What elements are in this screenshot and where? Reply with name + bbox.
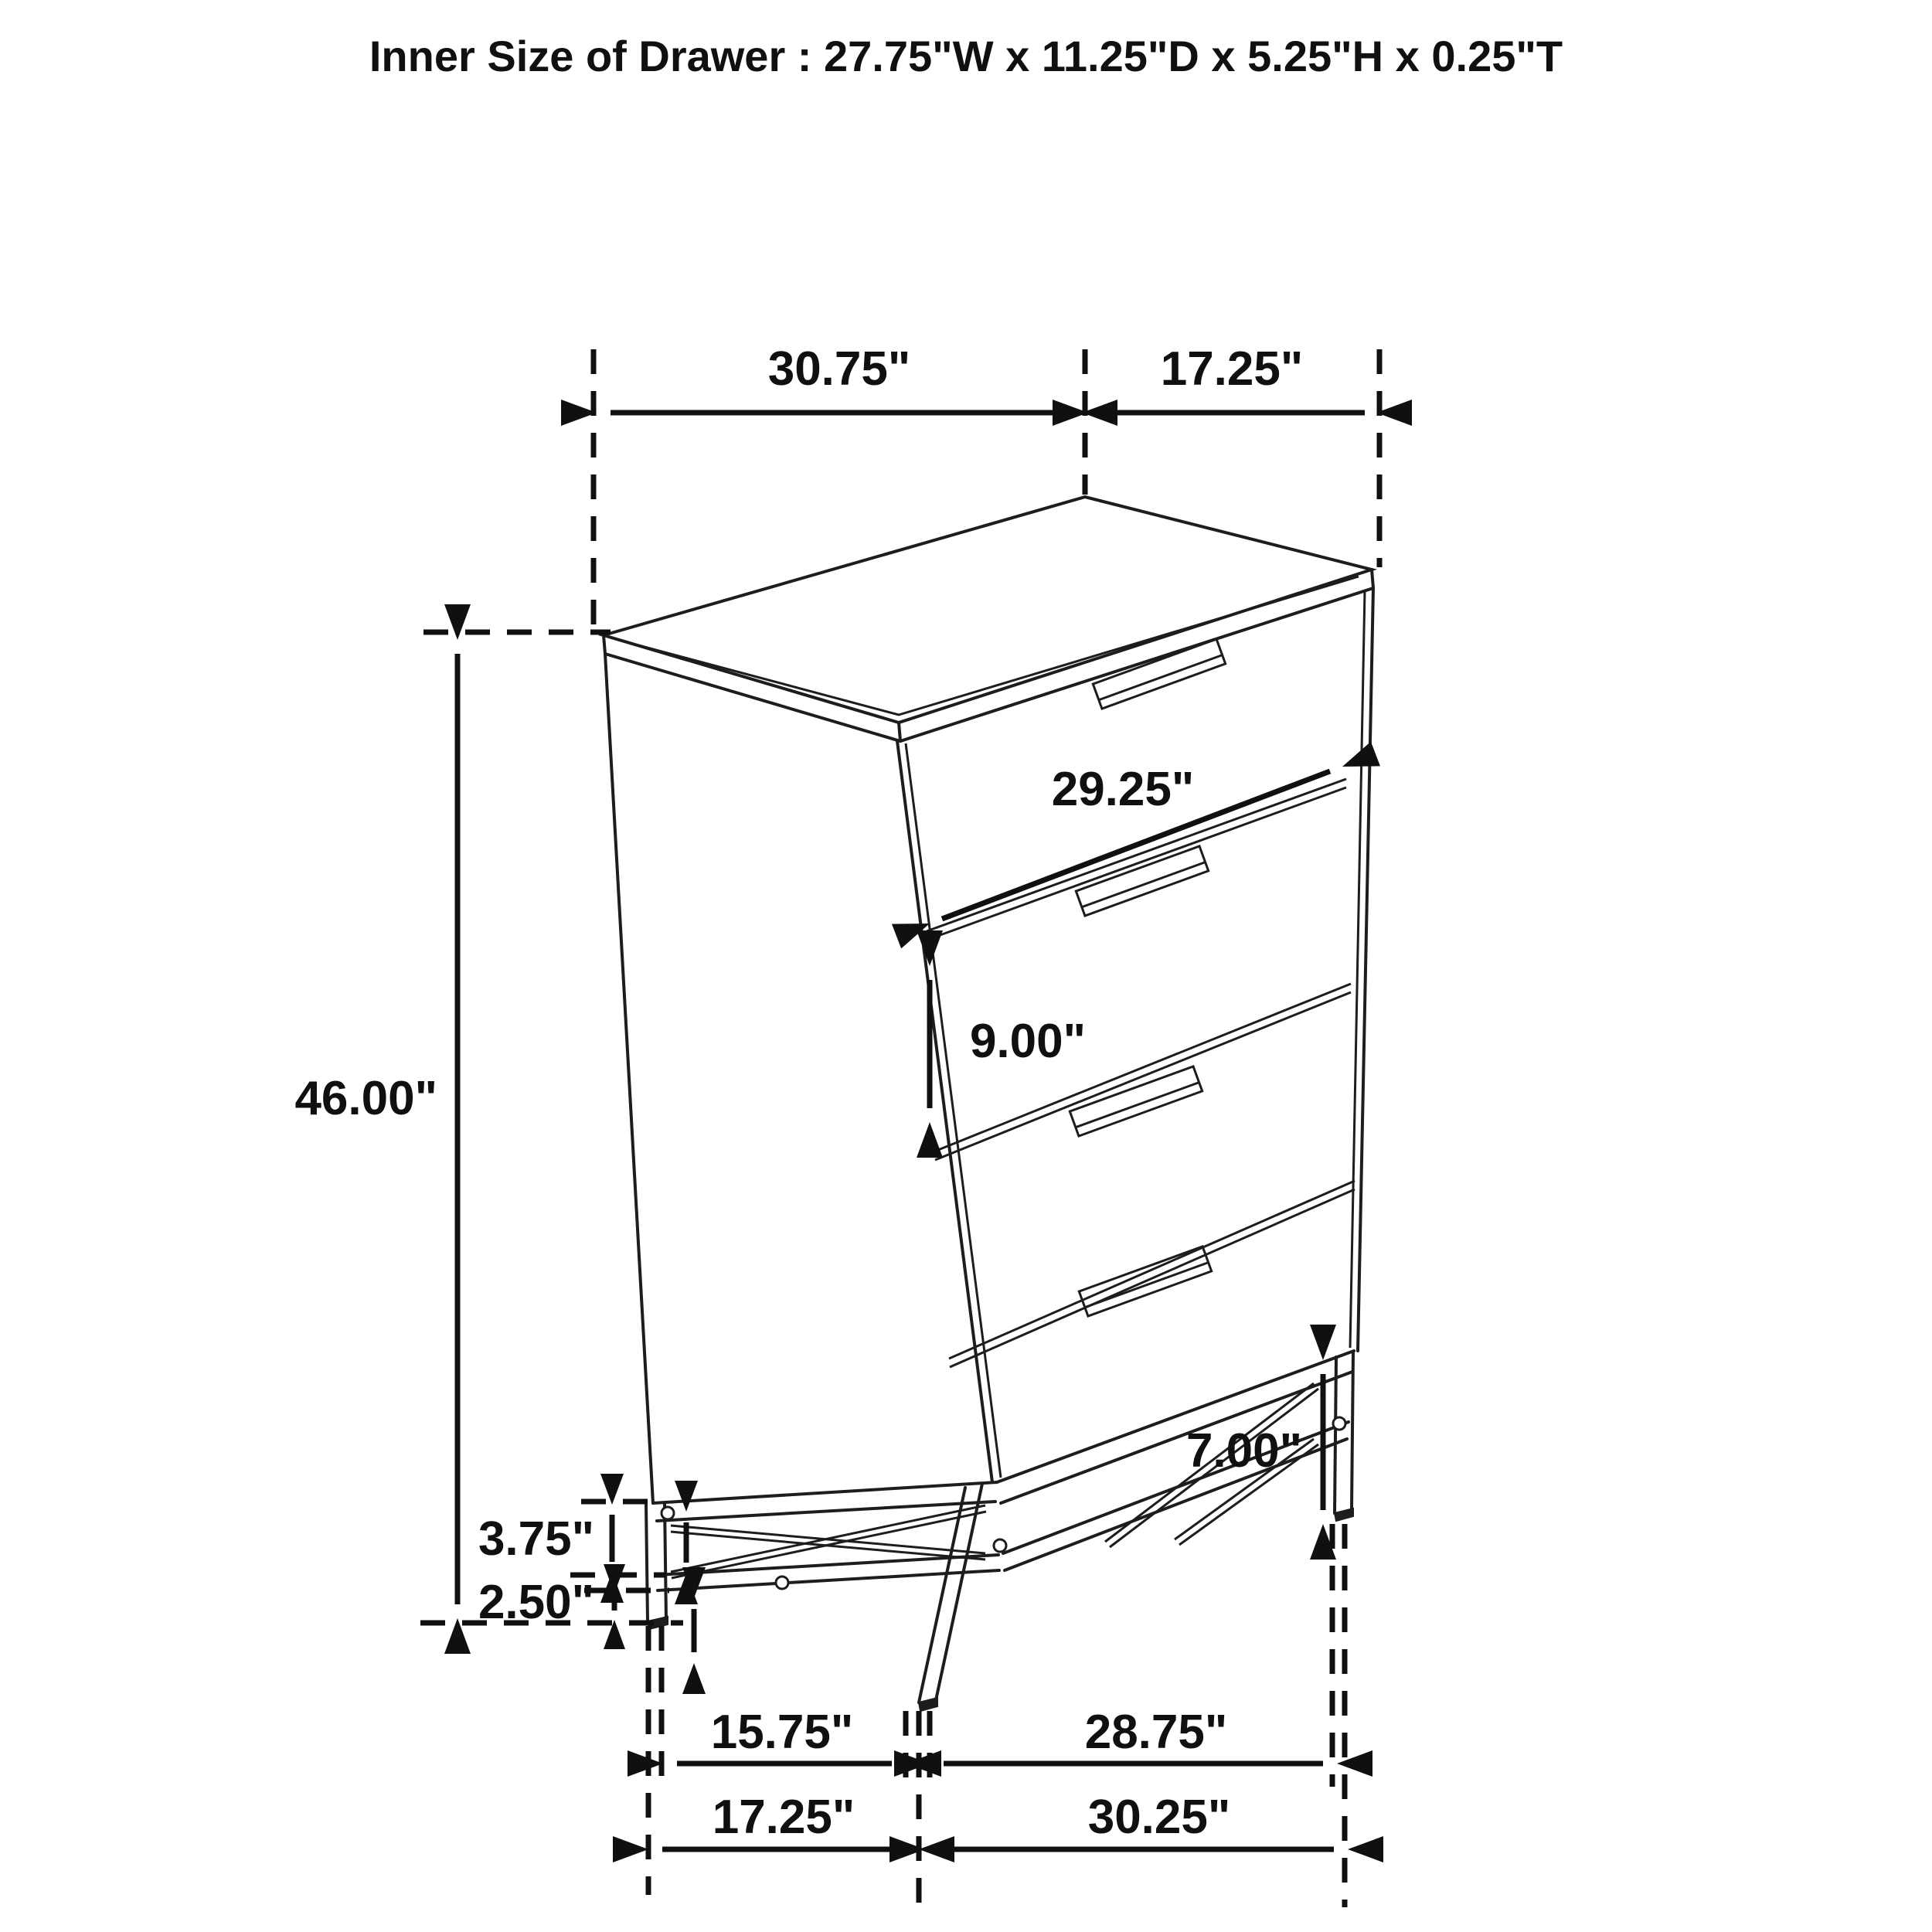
base-lower-label: 2.50"	[478, 1576, 594, 1629]
right-edge-outer	[1358, 588, 1373, 1351]
arrowhead-icon	[1310, 1325, 1336, 1360]
top-depth-label: 17.25"	[1161, 342, 1304, 396]
screw-hole	[994, 1539, 1006, 1552]
feet-depth-outer-label: 17.25"	[713, 1791, 855, 1844]
arrowhead-icon	[613, 1836, 648, 1862]
base-upper-label: 3.75"	[478, 1512, 594, 1566]
diagram-page: Inner Size of Drawer : 27.75"W x 11.25"D…	[0, 0, 1932, 1932]
feet-width-inner-label: 28.75"	[1085, 1706, 1228, 1759]
arrowhead-icon	[682, 1663, 706, 1694]
arrowhead-icon	[917, 930, 943, 966]
top-thickness-left	[604, 635, 605, 654]
arrowhead-icon	[675, 1481, 698, 1512]
drawer-width-label: 29.25"	[1052, 763, 1195, 816]
screw-hole	[662, 1507, 674, 1519]
base-left-brace-2	[671, 1505, 985, 1572]
feet-width-outer-label: 30.25"	[1088, 1791, 1231, 1844]
top-width-label: 30.75"	[768, 342, 911, 396]
drawer-gap-3	[949, 1181, 1355, 1359]
base-left-top-rail	[657, 1502, 995, 1521]
overall-height-label: 46.00"	[294, 1072, 437, 1125]
arrowhead-icon	[628, 1750, 663, 1777]
drawer-3-handle	[1070, 1066, 1202, 1136]
diagram-title: Inner Size of Drawer : 27.75"W x 11.25"D…	[369, 32, 1563, 80]
screw-hole	[1333, 1417, 1345, 1430]
top-thickness-front	[899, 723, 900, 741]
drawer-height-label: 9.00"	[970, 1015, 1086, 1068]
side-left-edge	[605, 654, 653, 1503]
top-bottom-edge	[605, 588, 1373, 741]
base-left-brace-2b	[672, 1512, 986, 1578]
drawer-gap-3b	[950, 1189, 1355, 1367]
base-leg-right	[1335, 1352, 1353, 1521]
arrowhead-icon	[1338, 742, 1380, 779]
arrowhead-icon	[1348, 1836, 1383, 1862]
top-thickness-right	[1372, 570, 1373, 588]
cabinet-body	[604, 497, 1373, 1503]
dimension-diagram: Inner Size of Drawer : 27.75"W x 11.25"D…	[0, 0, 1932, 1932]
arrowhead-icon	[917, 1122, 943, 1158]
base-frame	[646, 1352, 1353, 1711]
right-edge-inner	[1350, 590, 1365, 1348]
front-left-edge-outer	[897, 741, 992, 1482]
front-left-edge-inner	[906, 743, 1001, 1478]
drawer-2-handle	[1076, 846, 1208, 916]
feet-depth-inner-label: 15.75"	[711, 1706, 854, 1759]
bottom-dimensions: 15.75" 28.75" 17.25" 30.25"	[613, 1524, 1383, 1907]
drawer-fronts	[927, 639, 1355, 1367]
top-dimensions: 30.75" 17.25"	[561, 342, 1412, 631]
screw-hole	[776, 1577, 788, 1589]
base-lower-dimension: 2.50"	[478, 1564, 706, 1694]
overall-height-dimension: 46.00"	[294, 604, 683, 1654]
side-bottom-edge	[653, 1482, 997, 1503]
arrowhead-icon	[894, 1750, 930, 1777]
base-clearance-label: 7.00"	[1186, 1424, 1302, 1478]
